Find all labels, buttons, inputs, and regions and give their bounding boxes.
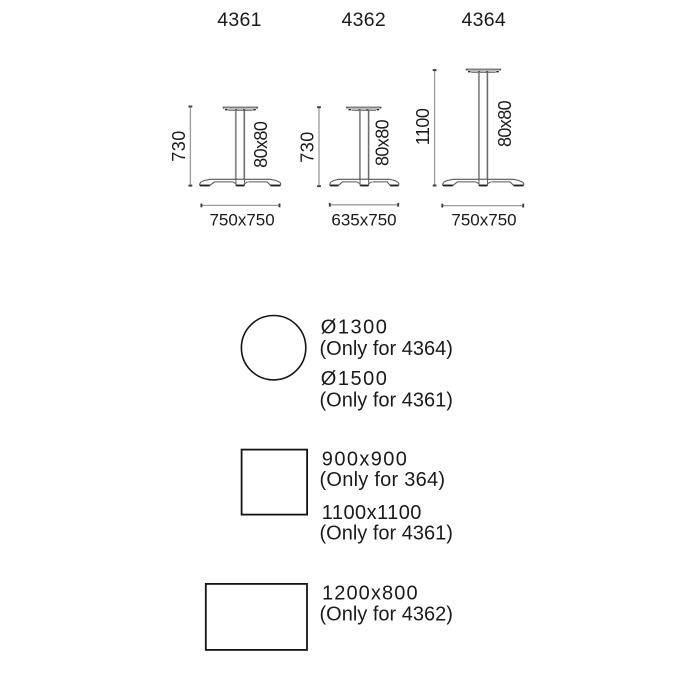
- svg-text:4361: 4361: [217, 9, 262, 31]
- svg-text:900x900: 900x900: [322, 448, 409, 470]
- svg-text:80x80: 80x80: [495, 100, 515, 147]
- svg-text:(Only for 4364): (Only for 4364): [320, 338, 453, 360]
- svg-text:(Only for 4361): (Only for 4361): [320, 523, 453, 545]
- svg-text:80x80: 80x80: [251, 121, 271, 168]
- svg-text:80x80: 80x80: [373, 119, 393, 166]
- svg-text:1200x800: 1200x800: [322, 582, 419, 604]
- svg-text:635x750: 635x750: [331, 210, 396, 229]
- svg-text:4364: 4364: [462, 9, 507, 31]
- svg-text:(Only for 364): (Only for 364): [320, 469, 446, 491]
- svg-text:Ø1500: Ø1500: [321, 368, 389, 390]
- svg-text:750x750: 750x750: [451, 210, 516, 229]
- svg-text:730: 730: [169, 130, 189, 162]
- svg-text:730: 730: [297, 131, 317, 163]
- svg-text:1100: 1100: [413, 108, 433, 145]
- svg-text:750x750: 750x750: [209, 210, 274, 229]
- svg-text:(Only for 4362): (Only for 4362): [320, 604, 453, 626]
- svg-text:4362: 4362: [342, 9, 387, 31]
- svg-text:Ø1300: Ø1300: [321, 317, 389, 339]
- svg-text:1100x1100: 1100x1100: [322, 502, 422, 524]
- svg-text:(Only for 4361): (Only for 4361): [320, 390, 453, 412]
